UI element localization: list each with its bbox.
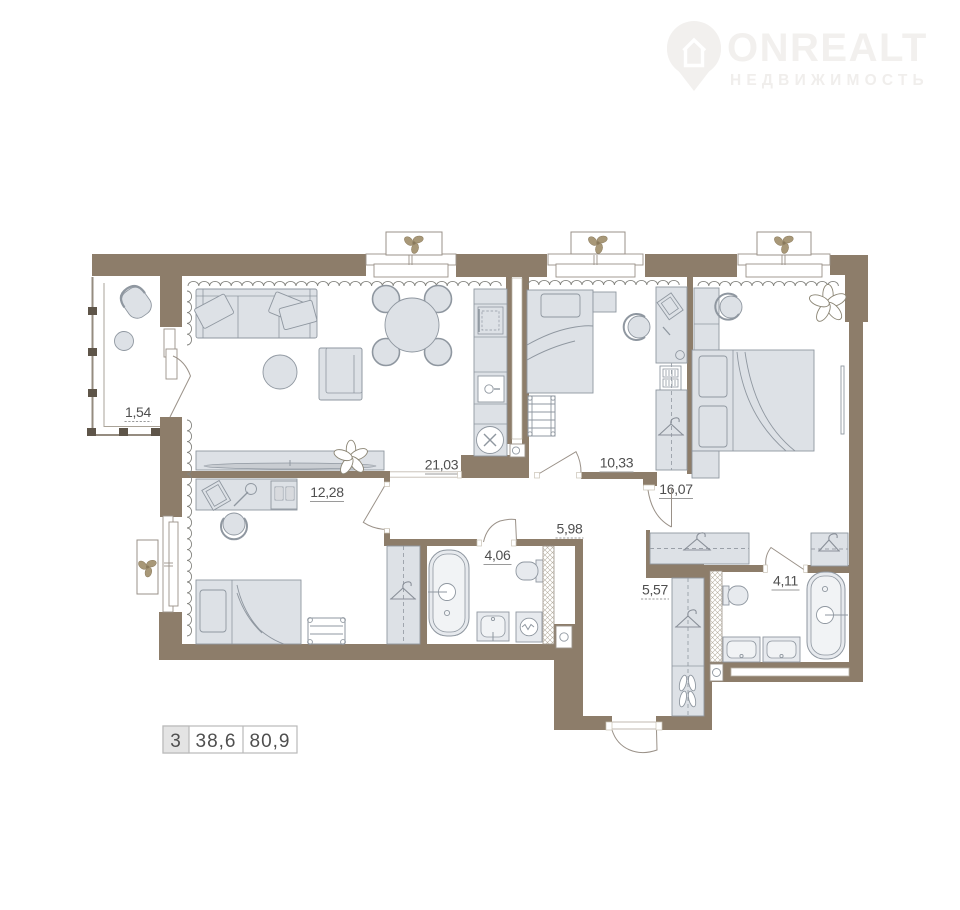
- svg-text:5,57: 5,57: [642, 582, 669, 598]
- svg-text:16,07: 16,07: [659, 481, 693, 497]
- svg-text:21,03: 21,03: [425, 457, 459, 473]
- svg-text:НЕДВИЖИМОСТЬ: НЕДВИЖИМОСТЬ: [730, 72, 929, 89]
- svg-text:4,11: 4,11: [773, 573, 799, 589]
- svg-text:3: 3: [170, 731, 182, 752]
- svg-text:ONREALT: ONREALT: [727, 26, 928, 70]
- svg-text:5,98: 5,98: [556, 521, 583, 537]
- svg-text:10,33: 10,33: [600, 455, 634, 471]
- svg-text:1,54: 1,54: [125, 404, 152, 420]
- svg-text:38,6: 38,6: [196, 731, 237, 752]
- svg-text:4,06: 4,06: [484, 547, 511, 563]
- svg-text:80,9: 80,9: [250, 731, 291, 752]
- svg-text:12,28: 12,28: [310, 484, 344, 500]
